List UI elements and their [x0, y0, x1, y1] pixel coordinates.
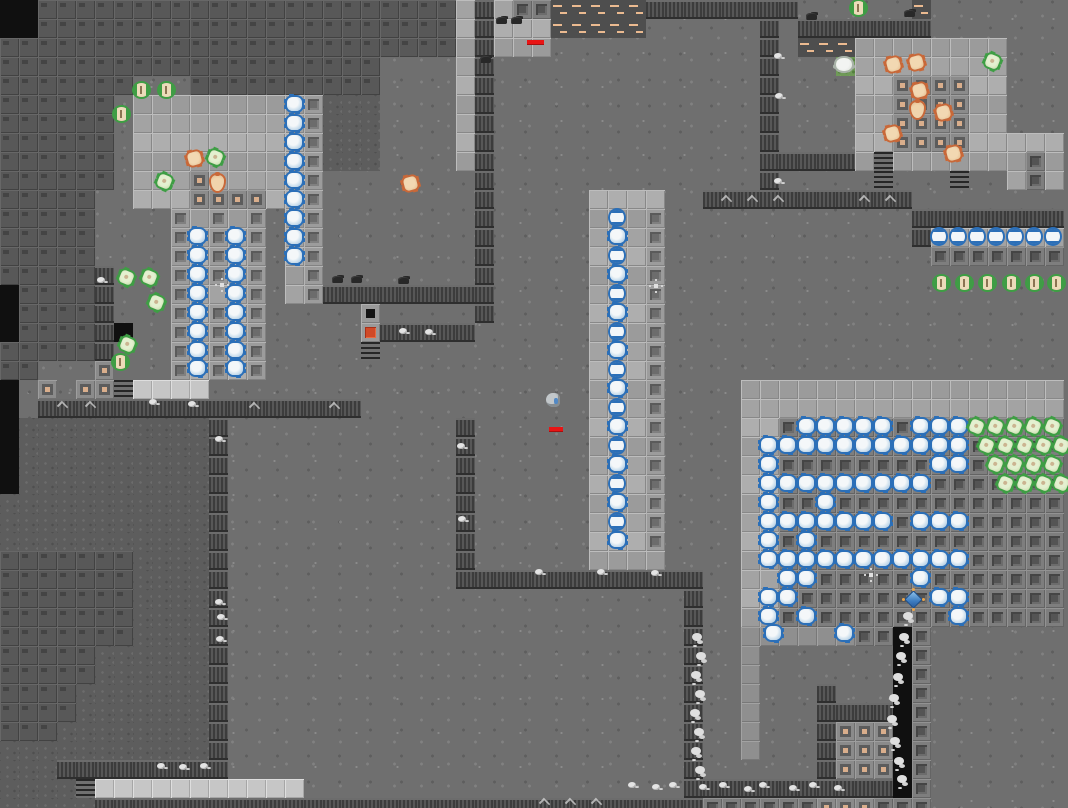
tile-wall-band	[760, 133, 779, 152]
tile-dark-rough-floor	[19, 741, 38, 760]
tile-rock-block	[418, 38, 437, 57]
blue-bug-creature[interactable]	[818, 476, 833, 490]
tile-rock-block	[76, 133, 95, 152]
blue-egg-creature[interactable]	[951, 229, 965, 244]
blue-bug-creature[interactable]	[610, 267, 625, 281]
tile-inset-floor-dark	[836, 456, 855, 475]
tile-dark-rough-floor	[38, 418, 57, 437]
blue-bug-creature[interactable]	[190, 229, 205, 243]
tile-dark-rough-floor	[152, 665, 171, 684]
tile-rock-block	[0, 38, 19, 57]
blue-bug-creature[interactable]	[610, 533, 625, 547]
tile-dark-rough-floor	[361, 152, 380, 171]
tile-smooth-floor	[133, 190, 152, 209]
tile-stairs	[76, 779, 95, 798]
tile-inset-floor-dark	[855, 456, 874, 475]
blue-bug-creature[interactable]	[837, 552, 852, 566]
blue-egg-creature[interactable]	[610, 210, 624, 225]
tile-dark-rough-floor	[133, 513, 152, 532]
tile-rock-block	[285, 76, 304, 95]
tile-rock-block	[190, 38, 209, 57]
tile-rock-block	[285, 38, 304, 57]
blue-bug-creature[interactable]	[190, 248, 205, 262]
blue-bug-creature[interactable]	[287, 230, 302, 244]
tile-wall-band	[475, 209, 494, 228]
blue-bug-creature[interactable]	[780, 476, 795, 490]
blue-bug-creature[interactable]	[780, 438, 795, 452]
tile-wall-band	[627, 798, 646, 808]
tile-smooth-floor	[741, 437, 760, 456]
green-bug-creature[interactable]	[1027, 276, 1042, 290]
tile-rock-block	[38, 608, 57, 627]
blue-egg-creature[interactable]	[610, 438, 624, 453]
rubble-decal	[200, 763, 208, 769]
tile-wall-band	[608, 570, 627, 589]
tile-dark-rough-floor	[38, 532, 57, 551]
blue-bug-creature[interactable]	[932, 438, 947, 452]
blue-bug-creature[interactable]	[761, 609, 776, 623]
tile-rock-block	[19, 342, 38, 361]
blue-bug-creature[interactable]	[766, 626, 781, 640]
mist-decal	[896, 652, 906, 660]
blue-bug-creature[interactable]	[761, 457, 776, 471]
tile-inset-floor-dark	[1026, 513, 1045, 532]
blue-bug-creature[interactable]	[951, 590, 966, 604]
blue-bug-creature[interactable]	[951, 419, 966, 433]
blue-bug-creature[interactable]	[856, 419, 871, 433]
tile-dark-rough-floor	[152, 741, 171, 760]
blue-bug-creature[interactable]	[856, 514, 871, 528]
tile-dark-rough-floor	[152, 551, 171, 570]
tile-dark-rough-floor	[323, 133, 342, 152]
green-bug-creature[interactable]	[934, 276, 949, 290]
tile-dark-rough-floor	[19, 513, 38, 532]
tile-wall-band	[95, 285, 114, 304]
blue-bug-creature[interactable]	[780, 590, 795, 604]
mist-decal	[695, 690, 705, 698]
tile-dark-rough-floor	[190, 589, 209, 608]
dark-item-decal	[904, 10, 915, 17]
blue-bug-creature[interactable]	[894, 438, 909, 452]
tile-rock-block	[361, 19, 380, 38]
tile-dark-rough-floor	[133, 741, 152, 760]
blue-bug-creature[interactable]	[932, 552, 947, 566]
tile-wall-band	[133, 760, 152, 779]
tile-dark-rough-floor	[190, 741, 209, 760]
tile-smooth-floor	[589, 323, 608, 342]
tile-stairs	[874, 152, 893, 171]
tile-dark-rough-floor	[38, 494, 57, 513]
tile-rock-block	[323, 76, 342, 95]
blue-bug-creature[interactable]	[228, 343, 243, 357]
tile-dark-rough-floor	[95, 532, 114, 551]
tile-wall-band	[513, 798, 532, 808]
blue-bug-creature[interactable]	[287, 135, 302, 149]
green-bug-creature[interactable]	[851, 1, 866, 15]
tile-wall-band	[665, 0, 684, 19]
tile-smooth-floor	[969, 380, 988, 399]
tile-inset-floor	[304, 247, 323, 266]
tile-rock-block	[209, 38, 228, 57]
blue-bug-creature[interactable]	[913, 419, 928, 433]
blue-bug-creature[interactable]	[894, 552, 909, 566]
blue-bug-creature[interactable]	[913, 438, 928, 452]
blue-bug-creature[interactable]	[799, 476, 814, 490]
green-bug-creature[interactable]	[1004, 276, 1019, 290]
blue-bug-creature[interactable]	[818, 552, 833, 566]
blue-bug-creature[interactable]	[780, 571, 795, 585]
tile-wall-band	[684, 570, 703, 589]
tile-rock-block	[266, 57, 285, 76]
blue-bug-creature[interactable]	[932, 457, 947, 471]
blue-bug-creature[interactable]	[761, 438, 776, 452]
tile-inset-floor-dark	[969, 494, 988, 513]
tile-void-black	[19, 19, 38, 38]
blue-bug-creature[interactable]	[799, 571, 814, 585]
blue-egg-creature[interactable]	[610, 248, 624, 263]
tile-smooth-floor	[988, 380, 1007, 399]
tile-dark-rough-floor	[0, 494, 19, 513]
blue-egg-creature[interactable]	[610, 400, 624, 415]
tile-rock-block	[0, 228, 19, 247]
blue-bug-creature[interactable]	[837, 438, 852, 452]
tile-wall-band	[760, 57, 779, 76]
tile-dark-rough-floor	[114, 494, 133, 513]
green-spider-creature[interactable]	[141, 269, 158, 286]
blue-bug-creature[interactable]	[799, 609, 814, 623]
blue-bug-creature[interactable]	[761, 590, 776, 604]
blue-bug-creature[interactable]	[610, 305, 625, 319]
blue-bug-creature[interactable]	[287, 154, 302, 168]
tile-wall-band	[779, 152, 798, 171]
tile-dark-rough-floor	[95, 475, 114, 494]
tile-wall-band	[684, 589, 703, 608]
mist-decal	[899, 633, 909, 641]
tile-wall-band	[475, 570, 494, 589]
blue-bug-creature[interactable]	[228, 305, 243, 319]
tile-wall-band	[57, 760, 76, 779]
blue-bug-creature[interactable]	[761, 552, 776, 566]
green-bug-creature[interactable]	[113, 355, 128, 369]
blue-bug-creature[interactable]	[190, 343, 205, 357]
tile-smooth-floor	[988, 76, 1007, 95]
tile-inset-floor	[171, 209, 190, 228]
tile-track-dash-tile	[589, 0, 608, 19]
tile-dark-rough-floor	[57, 798, 76, 808]
rubble-decal	[458, 516, 466, 522]
tile-wall-band	[209, 475, 228, 494]
tile-wall-band	[722, 0, 741, 19]
blue-bug-creature[interactable]	[932, 419, 947, 433]
tile-smooth-floor	[760, 380, 779, 399]
blue-egg-creature[interactable]	[610, 514, 624, 529]
tile-void-black	[0, 399, 19, 418]
tile-dark-rough-floor	[171, 494, 190, 513]
tile-rock-block	[437, 0, 456, 19]
tile-smooth-floor	[741, 589, 760, 608]
green-spider-creature[interactable]	[148, 294, 165, 311]
tile-inset-floor-dark	[969, 589, 988, 608]
rubble-decal	[217, 614, 225, 620]
green-bug-creature[interactable]	[957, 276, 972, 290]
player-creature[interactable]	[546, 393, 560, 407]
tile-smooth-floor	[266, 152, 285, 171]
blue-bug-creature[interactable]	[610, 457, 625, 471]
tile-wall-band	[1026, 209, 1045, 228]
tile-dark-rough-floor	[190, 513, 209, 532]
green-bug-creature[interactable]	[114, 107, 129, 121]
blue-bug-creature[interactable]	[190, 324, 205, 338]
tile-smooth-floor	[456, 76, 475, 95]
blue-egg-creature[interactable]	[610, 286, 624, 301]
blue-bug-creature[interactable]	[287, 249, 302, 263]
blue-bug-creature[interactable]	[761, 514, 776, 528]
tile-rock-block	[114, 570, 133, 589]
blue-bug-creature[interactable]	[761, 495, 776, 509]
tile-smooth-floor	[627, 190, 646, 209]
blue-bug-creature[interactable]	[610, 495, 625, 509]
tile-rock-block	[38, 703, 57, 722]
blue-bug-creature[interactable]	[287, 211, 302, 225]
tile-wall-band	[456, 456, 475, 475]
tile-dark-rough-floor	[190, 494, 209, 513]
tile-dark-rough-floor	[133, 532, 152, 551]
blue-egg-creature[interactable]	[1027, 229, 1041, 244]
tile-wall-band	[760, 114, 779, 133]
blue-bug-creature[interactable]	[837, 476, 852, 490]
tile-wall-band	[456, 551, 475, 570]
rubble-decal	[535, 569, 543, 575]
tile-inset-floor-dark	[893, 532, 912, 551]
tile-smooth-floor	[931, 399, 950, 418]
blue-bug-creature[interactable]	[913, 552, 928, 566]
blue-bug-creature[interactable]	[913, 571, 928, 585]
blue-bug-creature[interactable]	[761, 476, 776, 490]
blue-bug-creature[interactable]	[190, 361, 205, 375]
tile-smooth-floor	[532, 19, 551, 38]
blue-bug-creature[interactable]	[818, 419, 833, 433]
tile-dark-rough-floor	[171, 646, 190, 665]
tile-rock-block	[57, 570, 76, 589]
blue-bug-creature[interactable]	[913, 514, 928, 528]
tile-dark-rough-floor	[114, 437, 133, 456]
tile-smooth-floor	[589, 285, 608, 304]
tile-rock-block	[76, 665, 95, 684]
tile-wall-band	[893, 190, 912, 209]
blue-bug-creature[interactable]	[610, 419, 625, 433]
tile-dark-rough-floor	[95, 741, 114, 760]
blue-bug-creature[interactable]	[951, 552, 966, 566]
blue-bug-creature[interactable]	[951, 438, 966, 452]
tile-inset-floor	[247, 209, 266, 228]
tile-mid-floor	[817, 627, 836, 646]
blue-bug-creature[interactable]	[287, 97, 302, 111]
blue-bug-creature[interactable]	[837, 514, 852, 528]
blue-bug-creature[interactable]	[856, 476, 871, 490]
tile-bright-floor	[228, 779, 247, 798]
tile-rock-block	[95, 570, 114, 589]
tile-rock-block	[437, 19, 456, 38]
tile-inset-floor-dark	[969, 608, 988, 627]
blue-bug-creature[interactable]	[932, 590, 947, 604]
blue-bug-creature[interactable]	[799, 552, 814, 566]
tile-smooth-floor	[133, 171, 152, 190]
tile-smooth-floor	[855, 399, 874, 418]
green-bug-creature[interactable]	[159, 83, 174, 97]
tile-inset-floor	[171, 304, 190, 323]
green-bug-creature[interactable]	[134, 83, 149, 97]
tile-wall-band	[475, 798, 494, 808]
tile-rock-block	[0, 551, 19, 570]
tile-dark-rough-floor	[76, 532, 95, 551]
blue-egg-creature[interactable]	[1046, 229, 1060, 244]
blue-egg-creature[interactable]	[932, 229, 946, 244]
tile-inset-floor-dark	[1026, 532, 1045, 551]
tile-wall-band	[95, 342, 114, 361]
tile-smooth-floor	[969, 95, 988, 114]
tile-tan-center-tile	[247, 190, 266, 209]
tile-dark-rough-floor	[57, 532, 76, 551]
blue-bug-creature[interactable]	[932, 514, 947, 528]
blue-bug-creature[interactable]	[818, 514, 833, 528]
blue-bug-creature[interactable]	[190, 286, 205, 300]
tile-smooth-floor	[874, 38, 893, 57]
tile-wall-band	[684, 608, 703, 627]
tile-track-dash-tile	[570, 19, 589, 38]
tile-wall-band	[760, 152, 779, 171]
tile-dark-rough-floor	[361, 95, 380, 114]
blue-bug-creature[interactable]	[818, 438, 833, 452]
blue-bug-creature[interactable]	[875, 514, 890, 528]
tile-smooth-floor	[627, 475, 646, 494]
blue-bug-creature[interactable]	[913, 476, 928, 490]
green-spider-creature[interactable]	[119, 336, 136, 353]
tile-wall-band	[817, 760, 836, 779]
blue-bug-creature[interactable]	[780, 514, 795, 528]
blue-egg-creature[interactable]	[970, 229, 984, 244]
blue-bug-creature[interactable]	[190, 305, 205, 319]
tile-dark-rough-floor	[152, 684, 171, 703]
tile-dark-rough-floor	[19, 779, 38, 798]
tile-stairs	[950, 171, 969, 190]
tile-inset-floor-dark	[1007, 532, 1026, 551]
blue-bug-creature[interactable]	[837, 626, 852, 640]
tile-smooth-floor	[456, 57, 475, 76]
blue-bug-creature[interactable]	[287, 173, 302, 187]
tile-smooth-floor	[589, 190, 608, 209]
blue-bug-creature[interactable]	[610, 229, 625, 243]
tile-smooth-floor	[1007, 133, 1026, 152]
blue-bug-creature[interactable]	[799, 533, 814, 547]
blue-bug-creature[interactable]	[951, 457, 966, 471]
tile-dark-rough-floor	[57, 741, 76, 760]
tile-rock-block	[152, 57, 171, 76]
tile-smooth-floor	[228, 171, 247, 190]
tile-rock-block	[95, 57, 114, 76]
green-bug-creature[interactable]	[980, 276, 995, 290]
blue-bug-creature[interactable]	[761, 533, 776, 547]
tile-rock-block	[285, 0, 304, 19]
blue-egg-creature[interactable]	[989, 229, 1003, 244]
blue-bug-creature[interactable]	[837, 419, 852, 433]
blue-bug-creature[interactable]	[951, 609, 966, 623]
blue-egg-creature[interactable]	[610, 324, 624, 339]
tile-rock-block	[38, 190, 57, 209]
blue-egg-creature[interactable]	[1008, 229, 1022, 244]
tile-inset-floor-dark	[779, 456, 798, 475]
game-viewport[interactable]	[0, 0, 1068, 808]
tile-rock-block	[19, 133, 38, 152]
blue-bug-creature[interactable]	[190, 267, 205, 281]
blue-bug-creature[interactable]	[875, 419, 890, 433]
blue-bug-creature[interactable]	[951, 514, 966, 528]
blue-egg-creature[interactable]	[610, 362, 624, 377]
tile-tan-center-tile	[95, 380, 114, 399]
tile-mid-floor	[741, 741, 760, 760]
tile-wall-band	[209, 703, 228, 722]
tile-mid-floor	[741, 627, 760, 646]
blue-bug-creature[interactable]	[799, 514, 814, 528]
blue-bug-creature[interactable]	[780, 552, 795, 566]
green-bug-creature[interactable]	[1049, 276, 1064, 290]
rubble-decal	[399, 328, 407, 334]
blue-bug-creature[interactable]	[228, 324, 243, 338]
gem-unit-creature[interactable]	[905, 591, 922, 608]
blue-bug-creature[interactable]	[287, 116, 302, 130]
tile-smooth-floor	[1007, 399, 1026, 418]
blue-bug-creature[interactable]	[799, 419, 814, 433]
tile-rock-block	[57, 608, 76, 627]
tile-inset-floor-dark	[703, 798, 722, 808]
tile-inset-floor-dark	[912, 646, 931, 665]
blue-bug-creature[interactable]	[818, 495, 833, 509]
blue-bug-creature[interactable]	[228, 229, 243, 243]
blue-bug-creature[interactable]	[856, 552, 871, 566]
blue-egg-creature[interactable]	[610, 476, 624, 491]
tile-smooth-floor	[741, 608, 760, 627]
tile-rock-block	[76, 38, 95, 57]
tile-smooth-floor	[171, 171, 190, 190]
blue-bug-creature[interactable]	[875, 438, 890, 452]
blue-bug-creature[interactable]	[228, 248, 243, 262]
blue-bug-creature[interactable]	[228, 361, 243, 375]
tile-dark-rough-floor	[133, 722, 152, 741]
tile-rock-block	[342, 0, 361, 19]
tile-wall-band	[247, 798, 266, 808]
white-creature-creature[interactable]	[836, 58, 852, 71]
tile-wall-band	[1007, 209, 1026, 228]
orange-crab-creature[interactable]	[403, 176, 419, 192]
tile-inset-floor-dark	[779, 798, 798, 808]
blue-bug-creature[interactable]	[287, 192, 302, 206]
rubble-decal	[809, 782, 817, 788]
blue-bug-creature[interactable]	[799, 438, 814, 452]
blue-bug-creature[interactable]	[894, 476, 909, 490]
tile-inset-floor-dark	[988, 532, 1007, 551]
tile-dark-rough-floor	[171, 589, 190, 608]
blue-bug-creature[interactable]	[610, 381, 625, 395]
tile-wall-band	[646, 798, 665, 808]
blue-bug-creature[interactable]	[856, 438, 871, 452]
green-spider-creature[interactable]	[118, 269, 135, 286]
tile-track-dash-tile	[589, 19, 608, 38]
blue-bug-creature[interactable]	[610, 343, 625, 357]
tile-smooth-floor	[855, 133, 874, 152]
blue-bug-creature[interactable]	[875, 476, 890, 490]
tile-inset-floor-dark	[1026, 494, 1045, 513]
tile-rock-block	[95, 0, 114, 19]
blue-bug-creature[interactable]	[875, 552, 890, 566]
